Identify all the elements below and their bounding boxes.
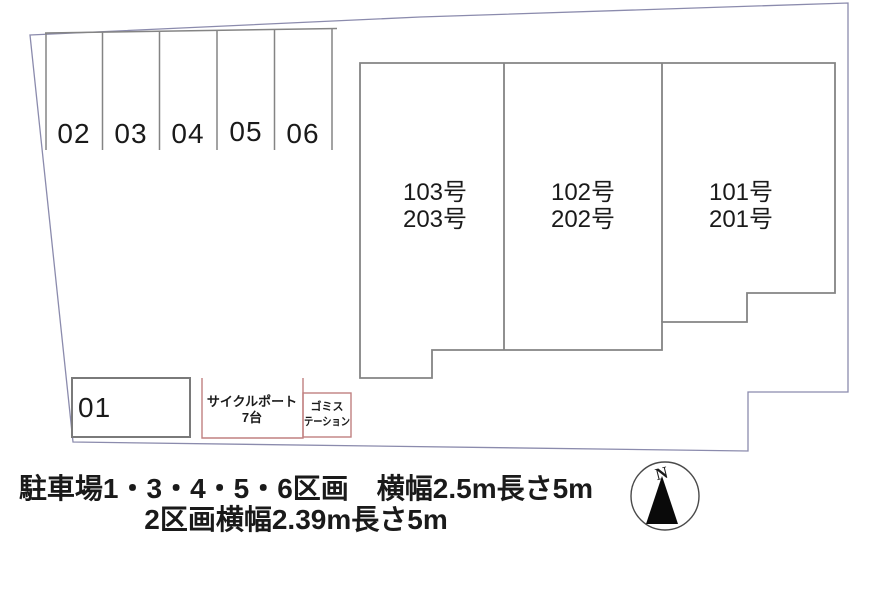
parking-stall-label: 05 xyxy=(229,116,262,147)
garbage-station-label-line2: テーション xyxy=(304,415,350,428)
caption-line-2: 2区画横幅2.39m長さ5m xyxy=(144,504,447,535)
north-compass: N xyxy=(631,462,699,530)
cycle-port-label: サイクルポート xyxy=(207,394,297,409)
building-unit-label-lower: 201号 xyxy=(709,206,773,233)
parking-stall-label: 06 xyxy=(286,118,319,149)
parking-stall-top-line xyxy=(45,29,337,34)
parking-stall-label: 04 xyxy=(171,118,204,149)
parking-stall-label: 02 xyxy=(57,118,90,149)
caption-line-1: 駐車場1・3・4・5・6区画 横幅2.5m長さ5m xyxy=(19,473,593,504)
cycle-port-capacity: 7台 xyxy=(242,410,262,425)
site-plan-svg: 02 03 04 05 06 103号 203号 102号 202号 101号 … xyxy=(0,0,872,591)
building-unit-label-upper: 103号 xyxy=(403,179,467,206)
building-unit-label-lower: 203号 xyxy=(403,206,467,233)
compass-north-label: N xyxy=(653,463,670,485)
site-plan-canvas: 02 03 04 05 06 103号 203号 102号 202号 101号 … xyxy=(0,0,872,591)
garbage-station-label-line1: ゴミス xyxy=(311,399,344,413)
building-unit-label-upper: 102号 xyxy=(551,179,615,206)
parking-stall-label: 03 xyxy=(114,118,147,149)
building-unit-label-upper: 101号 xyxy=(709,179,773,206)
building-unit-label-lower: 202号 xyxy=(551,206,615,233)
garbage-station-box xyxy=(303,393,351,437)
compass-needle-icon xyxy=(646,476,678,524)
parking-stall-01-label: 01 xyxy=(78,392,111,423)
